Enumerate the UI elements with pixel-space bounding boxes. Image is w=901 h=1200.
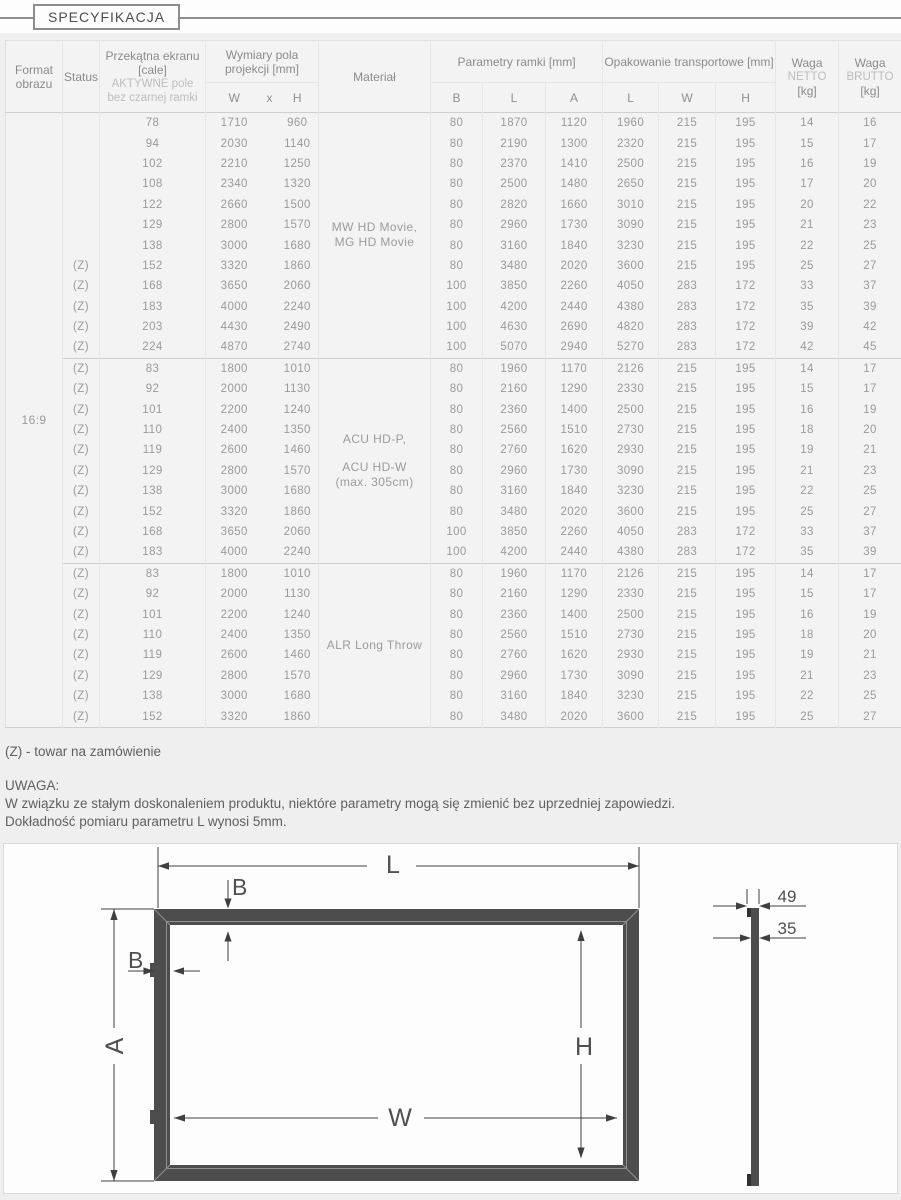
note-z: (Z) - towar na zamówienie	[5, 743, 675, 761]
spacer-cell	[263, 379, 277, 399]
material-cell: ALR Long Throw	[319, 563, 431, 727]
frame-a-cell: 2020	[546, 256, 603, 276]
table-row: 12226601500802820166030102151952022	[6, 195, 901, 215]
dim-label-35: 35	[778, 919, 797, 938]
frame-l-cell: 2160	[483, 379, 546, 399]
frame-b-cell: 80	[431, 174, 483, 194]
width-cell: 2210	[206, 154, 263, 174]
frame-b-cell: 80	[431, 399, 483, 419]
pack-w-cell: 215	[659, 358, 716, 379]
dim-label-h: H	[575, 1033, 593, 1061]
frame-b-cell: 100	[431, 317, 483, 337]
frame-a-cell: 1170	[546, 358, 603, 379]
frame-b-cell: 100	[431, 522, 483, 542]
pack-l-cell: 3010	[603, 195, 659, 215]
pack-h-cell: 195	[716, 604, 776, 624]
frame-l-cell: 3480	[483, 706, 546, 727]
frame-a-cell: 1480	[546, 174, 603, 194]
width-cell: 3650	[206, 276, 263, 296]
weight-gross-cell: 23	[839, 461, 901, 481]
status-cell: (Z)	[63, 379, 100, 399]
height-cell: 1350	[277, 625, 319, 645]
pack-h-cell: 172	[716, 276, 776, 296]
pack-h-cell: 195	[716, 113, 776, 134]
spacer-cell	[263, 337, 277, 358]
weight-gross-cell: 17	[839, 358, 901, 379]
notes-block: (Z) - towar na zamówienie UWAGA: W związ…	[5, 743, 675, 831]
height-cell: 960	[277, 113, 319, 134]
pack-w-cell: 215	[659, 604, 716, 624]
weight-net-cell: 14	[776, 358, 839, 379]
weight-net-cell: 15	[776, 584, 839, 604]
pack-h-cell: 172	[716, 317, 776, 337]
status-cell: (Z)	[63, 563, 100, 584]
table-row: (Z)183400022401004200244043802831723539	[6, 297, 901, 317]
spacer-cell	[263, 358, 277, 379]
weight-gross-cell: 45	[839, 337, 901, 358]
status-cell: (Z)	[63, 297, 100, 317]
spec-table-body: 16:9781710960MW HD Movie,MG HD Movie8018…	[6, 113, 901, 728]
weight-net-cell: 21	[776, 215, 839, 235]
pack-l-cell: 1960	[603, 113, 659, 134]
frame-a-cell: 1730	[546, 666, 603, 686]
status-cell	[63, 113, 100, 134]
frame-b-cell: 80	[431, 666, 483, 686]
l-arrow-right	[628, 862, 639, 870]
frame-l-cell: 2960	[483, 666, 546, 686]
table-row: (Z)9220001130802160129023302151951517	[6, 584, 901, 604]
pack-h-cell: 195	[716, 666, 776, 686]
pack-w-cell: 215	[659, 235, 716, 255]
frame-b-cell: 80	[431, 195, 483, 215]
frame-b-cell: 80	[431, 501, 483, 521]
width-cell: 2200	[206, 604, 263, 624]
height-cell: 1500	[277, 195, 319, 215]
weight-gross-cell: 19	[839, 154, 901, 174]
table-row: (Z)8318001010ACU HD-P,ACU HD-W(max. 305c…	[6, 358, 901, 379]
subcol-frame-b: B	[431, 83, 483, 113]
pack-l-cell: 5270	[603, 337, 659, 358]
spacer-cell	[263, 297, 277, 317]
frame-l-cell: 3160	[483, 686, 546, 706]
d49-arrow-right	[736, 902, 747, 909]
subcol-w: W	[206, 83, 263, 113]
status-cell: (Z)	[63, 645, 100, 665]
status-cell: (Z)	[63, 420, 100, 440]
weight-net-cell: 22	[776, 481, 839, 501]
spacer-cell	[263, 542, 277, 563]
l-arrow-left	[158, 862, 169, 870]
width-cell: 2030	[206, 133, 263, 153]
subcol-frame-l: L	[483, 83, 546, 113]
pack-w-cell: 283	[659, 276, 716, 296]
width-cell: 2400	[206, 625, 263, 645]
table-row: (Z)11024001350802560151027302151951820	[6, 420, 901, 440]
frame-tab-left-lower	[150, 1110, 155, 1124]
height-cell: 1010	[277, 358, 319, 379]
status-cell: (Z)	[63, 317, 100, 337]
height-cell: 1320	[277, 174, 319, 194]
status-cell: (Z)	[63, 481, 100, 501]
frame-b-cell: 80	[431, 686, 483, 706]
pack-w-cell: 215	[659, 379, 716, 399]
pack-l-cell: 2930	[603, 645, 659, 665]
material-line: ACU HD-W	[320, 460, 429, 475]
width-cell: 2400	[206, 420, 263, 440]
material-line: (max. 305cm)	[320, 475, 429, 490]
col-header-weight-gross: Waga BRUTTO [kg]	[839, 41, 901, 113]
spacer-cell	[263, 113, 277, 134]
pack-l-cell: 3600	[603, 501, 659, 521]
weight-gross-cell: 23	[839, 215, 901, 235]
status-cell	[63, 215, 100, 235]
pack-l-cell: 2330	[603, 584, 659, 604]
frame-a-cell: 2440	[546, 542, 603, 563]
subcol-pack-h: H	[716, 83, 776, 113]
table-row: (Z)11024001350802560151027302151951820	[6, 625, 901, 645]
frame-a-cell: 1400	[546, 604, 603, 624]
height-cell: 2240	[277, 542, 319, 563]
weight-net-cell: 33	[776, 522, 839, 542]
diagonal-cell: 168	[100, 276, 206, 296]
table-row: (Z)168365020601003850226040502831723337	[6, 276, 901, 296]
weight-gross-cell: 39	[839, 297, 901, 317]
frame-a-cell: 1730	[546, 461, 603, 481]
pack-w-cell: 215	[659, 440, 716, 460]
col-header-frame-params: Parametry ramki [mm]	[431, 41, 603, 83]
table-row: (Z)15233201860803480202036002151952527	[6, 706, 901, 727]
note-uwaga-line2: Dokładność pomiaru parametru L wynosi 5m…	[5, 813, 675, 831]
table-row: 13830001680803160184032302151952225	[6, 235, 901, 255]
height-cell: 1460	[277, 440, 319, 460]
status-cell: (Z)	[63, 276, 100, 296]
spacer-cell	[263, 522, 277, 542]
weight-gross-cell: 16	[839, 113, 901, 134]
pack-h-cell: 195	[716, 133, 776, 153]
weight-net-cell: 35	[776, 297, 839, 317]
frame-a-cell: 1840	[546, 481, 603, 501]
width-cell: 4430	[206, 317, 263, 337]
width-cell: 4870	[206, 337, 263, 358]
dim-label-a: A	[101, 1037, 129, 1054]
weight-gross-cell: 23	[839, 666, 901, 686]
status-cell: (Z)	[63, 256, 100, 276]
subcol-pack-w: W	[659, 83, 716, 113]
frame-b-cell: 80	[431, 256, 483, 276]
weight-gross-cell: 37	[839, 522, 901, 542]
weight-gross-cell: 17	[839, 133, 901, 153]
dim-label-49: 49	[778, 887, 797, 906]
dimension-diagram: L B A B W	[4, 844, 897, 1193]
frame-l-cell: 3850	[483, 522, 546, 542]
frame-a-cell: 2440	[546, 297, 603, 317]
pack-l-cell: 4820	[603, 317, 659, 337]
weight-net-cell: 25	[776, 501, 839, 521]
frame-b-cell: 80	[431, 645, 483, 665]
status-cell: (Z)	[63, 399, 100, 419]
frame-b-cell: 80	[431, 235, 483, 255]
spacer-cell	[263, 399, 277, 419]
pack-h-cell: 195	[716, 379, 776, 399]
status-cell: (Z)	[63, 706, 100, 727]
weight-gross-cell: 21	[839, 645, 901, 665]
weight-gross-cell: 27	[839, 706, 901, 727]
weight-net-cell: 16	[776, 399, 839, 419]
pack-w-cell: 215	[659, 563, 716, 584]
pack-w-cell: 215	[659, 133, 716, 153]
subcol-h: H	[277, 83, 319, 113]
pack-w-cell: 283	[659, 542, 716, 563]
width-cell: 3320	[206, 706, 263, 727]
height-cell: 1140	[277, 133, 319, 153]
table-row: (Z)10122001240802360140025002151951619	[6, 399, 901, 419]
weight-net-cell: 16	[776, 154, 839, 174]
width-cell: 2000	[206, 584, 263, 604]
pack-l-cell: 4050	[603, 276, 659, 296]
weight-net-cell: 22	[776, 686, 839, 706]
frame-l-cell: 2160	[483, 584, 546, 604]
pack-h-cell: 195	[716, 174, 776, 194]
diagonal-cell: 129	[100, 461, 206, 481]
diagonal-cell: 108	[100, 174, 206, 194]
weight-net-cell: 21	[776, 461, 839, 481]
material-line: MG HD Movie	[320, 235, 429, 250]
diagonal-cell: 83	[100, 358, 206, 379]
pack-h-cell: 195	[716, 686, 776, 706]
weight-net-cell: 19	[776, 440, 839, 460]
diagonal-cell: 122	[100, 195, 206, 215]
col-header-diagonal: Przekątna ekranu [cale] AKTYWNE pole bez…	[100, 41, 206, 113]
diagonal-title: Przekątna ekranu [cale]	[101, 49, 204, 77]
height-cell: 1460	[277, 645, 319, 665]
frame-l-cell: 3850	[483, 276, 546, 296]
spec-title-box: SPECYFIKACJA	[33, 4, 180, 30]
pack-w-cell: 215	[659, 501, 716, 521]
pack-h-cell: 172	[716, 542, 776, 563]
pack-h-cell: 195	[716, 154, 776, 174]
diagonal-cell: 183	[100, 297, 206, 317]
frame-a-cell: 1290	[546, 379, 603, 399]
weight-net-cell: 16	[776, 604, 839, 624]
frame-a-cell: 1620	[546, 440, 603, 460]
pack-l-cell: 4380	[603, 542, 659, 563]
pack-w-cell: 215	[659, 666, 716, 686]
weight-gross-cell: 22	[839, 195, 901, 215]
pack-l-cell: 3090	[603, 461, 659, 481]
pack-h-cell: 195	[716, 399, 776, 419]
spacer-cell	[263, 440, 277, 460]
b-top-arrow-down	[224, 899, 231, 909]
pack-w-cell: 215	[659, 645, 716, 665]
pack-h-cell: 195	[716, 584, 776, 604]
table-row: (Z)13830001680803160184032302151952225	[6, 481, 901, 501]
diagonal-cell: 129	[100, 215, 206, 235]
pack-h-cell: 195	[716, 645, 776, 665]
frame-a-cell: 2020	[546, 706, 603, 727]
height-cell: 1570	[277, 215, 319, 235]
diagonal-cell: 83	[100, 563, 206, 584]
pack-l-cell: 4380	[603, 297, 659, 317]
frame-b-cell: 80	[431, 461, 483, 481]
material-line: MW HD Movie,	[320, 220, 429, 235]
a-arrow-up	[110, 909, 117, 920]
weight-gross-cell: 19	[839, 604, 901, 624]
weight-net-cell: 18	[776, 625, 839, 645]
frame-b-cell: 80	[431, 706, 483, 727]
pack-h-cell: 195	[716, 625, 776, 645]
frame-a-cell: 1660	[546, 195, 603, 215]
table-row: (Z)10122001240802360140025002151951619	[6, 604, 901, 624]
dim-label-l: L	[386, 851, 400, 879]
pack-h-cell: 195	[716, 420, 776, 440]
status-cell	[63, 195, 100, 215]
frame-l-cell: 2960	[483, 461, 546, 481]
weight-net-cell: 14	[776, 113, 839, 134]
frame-l-cell: 2190	[483, 133, 546, 153]
pack-w-cell: 283	[659, 522, 716, 542]
diagonal-cell: 101	[100, 399, 206, 419]
diagonal-cell: 94	[100, 133, 206, 153]
status-cell: (Z)	[63, 584, 100, 604]
frame-l-cell: 2560	[483, 625, 546, 645]
pack-h-cell: 172	[716, 297, 776, 317]
frame-a-cell: 1290	[546, 584, 603, 604]
frame-l-cell: 2760	[483, 645, 546, 665]
pack-h-cell: 195	[716, 195, 776, 215]
pack-l-cell: 3230	[603, 235, 659, 255]
frame-b-cell: 80	[431, 481, 483, 501]
frame-a-cell: 1300	[546, 133, 603, 153]
width-cell: 2800	[206, 666, 263, 686]
pack-w-cell: 215	[659, 399, 716, 419]
pack-h-cell: 195	[716, 501, 776, 521]
multiply-symbol: x	[263, 83, 277, 113]
height-cell: 1860	[277, 501, 319, 521]
height-cell: 2740	[277, 337, 319, 358]
pack-l-cell: 3600	[603, 706, 659, 727]
pack-h-cell: 195	[716, 461, 776, 481]
width-cell: 2800	[206, 215, 263, 235]
width-cell: 2600	[206, 645, 263, 665]
frame-l-cell: 2360	[483, 399, 546, 419]
width-cell: 4000	[206, 297, 263, 317]
dim-label-b-left: B	[128, 947, 143, 973]
width-cell: 3000	[206, 481, 263, 501]
height-cell: 1680	[277, 686, 319, 706]
width-cell: 2800	[206, 461, 263, 481]
table-row: (Z)13830001680803160184032302151952225	[6, 686, 901, 706]
weight-gross-cell: 19	[839, 399, 901, 419]
pack-l-cell: 4050	[603, 522, 659, 542]
dim-label-w: W	[388, 1104, 412, 1132]
diagonal-cell: 102	[100, 154, 206, 174]
pack-w-cell: 283	[659, 337, 716, 358]
diagonal-cell: 78	[100, 113, 206, 134]
diagonal-cell: 119	[100, 645, 206, 665]
pack-h-cell: 172	[716, 337, 776, 358]
pack-h-cell: 172	[716, 522, 776, 542]
width-cell: 3000	[206, 686, 263, 706]
table-row: (Z)168365020601003850226040502831723337	[6, 522, 901, 542]
col-header-material: Materiał	[319, 41, 431, 113]
status-cell: (Z)	[63, 542, 100, 563]
table-row: (Z)203443024901004630269048202831723942	[6, 317, 901, 337]
weight-gross-cell: 17	[839, 584, 901, 604]
spacer-cell	[263, 195, 277, 215]
d35-arrow-left	[759, 934, 770, 941]
frame-b-cell: 80	[431, 440, 483, 460]
status-cell: (Z)	[63, 522, 100, 542]
width-cell: 3650	[206, 522, 263, 542]
pack-w-cell: 215	[659, 215, 716, 235]
diagonal-cell: 129	[100, 666, 206, 686]
pack-w-cell: 283	[659, 297, 716, 317]
frame-l-cell: 1960	[483, 358, 546, 379]
col-header-packaging: Opakowanie transportowe [mm]	[603, 41, 776, 83]
frame-b-cell: 80	[431, 584, 483, 604]
spacer-cell	[263, 666, 277, 686]
pack-h-cell: 195	[716, 358, 776, 379]
status-cell: (Z)	[63, 666, 100, 686]
frame-l-cell: 4200	[483, 542, 546, 563]
weight-gross-cell: 25	[839, 235, 901, 255]
frame-a-cell: 1510	[546, 420, 603, 440]
table-row: (Z)15233201860803480202036002151952527	[6, 256, 901, 276]
diagonal-cell: 203	[100, 317, 206, 337]
frame-a-cell: 1410	[546, 154, 603, 174]
frame-b-cell: 80	[431, 154, 483, 174]
table-row: (Z)11926001460802760162029302151951921	[6, 645, 901, 665]
frame-l-cell: 3480	[483, 501, 546, 521]
weight-net-cell: 15	[776, 133, 839, 153]
material-line	[320, 447, 429, 460]
weight-net-cell: 17	[776, 174, 839, 194]
status-cell: (Z)	[63, 461, 100, 481]
pack-w-cell: 215	[659, 481, 716, 501]
table-row: (Z)8318001010ALR Long Throw8019601170212…	[6, 563, 901, 584]
height-cell: 1130	[277, 584, 319, 604]
status-cell: (Z)	[63, 358, 100, 379]
col-header-weight-net: Waga NETTO [kg]	[776, 41, 839, 113]
table-row: (Z)183400022401004200244043802831723539	[6, 542, 901, 563]
weight-net-cell: 20	[776, 195, 839, 215]
pack-w-cell: 215	[659, 113, 716, 134]
status-cell	[63, 154, 100, 174]
subcol-pack-l: L	[603, 83, 659, 113]
diagonal-cell: 168	[100, 522, 206, 542]
weight-net-cell: 39	[776, 317, 839, 337]
spacer-cell	[263, 276, 277, 296]
spacer-cell	[263, 420, 277, 440]
diagonal-cell: 92	[100, 379, 206, 399]
frame-l-cell: 2360	[483, 604, 546, 624]
frame-a-cell: 1170	[546, 563, 603, 584]
table-row: (Z)15233201860803480202036002151952527	[6, 501, 901, 521]
dim-label-b-top: B	[232, 874, 247, 900]
pack-h-cell: 195	[716, 256, 776, 276]
pack-w-cell: 215	[659, 461, 716, 481]
height-cell: 2490	[277, 317, 319, 337]
weight-gross-cell: 25	[839, 686, 901, 706]
pack-w-cell: 215	[659, 584, 716, 604]
frame-l-cell: 2760	[483, 440, 546, 460]
table-row: 10823401320802500148026502151951720	[6, 174, 901, 194]
spec-page: SPECYFIKACJA Format obrazu Status Przeką…	[0, 0, 901, 1200]
pack-w-cell: 215	[659, 256, 716, 276]
status-cell: (Z)	[63, 686, 100, 706]
pack-h-cell: 195	[716, 706, 776, 727]
diagonal-cell: 152	[100, 501, 206, 521]
